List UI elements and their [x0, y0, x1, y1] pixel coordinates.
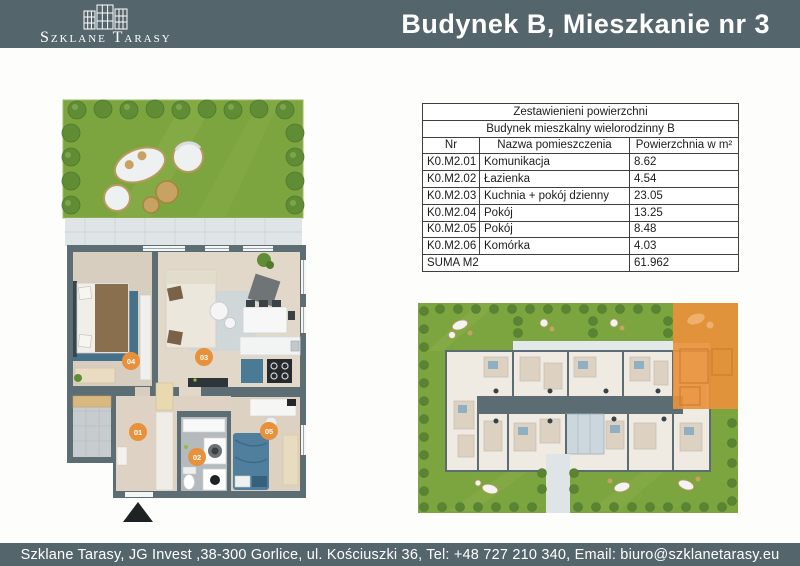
komorka-shelf	[73, 396, 111, 407]
table-header-row: Nr Nazwa pomieszczenia Powierzchnia w m²	[423, 137, 739, 154]
brand-logo: Szklane Tarasy	[40, 4, 172, 45]
table-row: K0.M2.04 Pokój 13.25	[423, 204, 739, 221]
page-title: Budynek B, Mieszkanie nr 3	[401, 9, 770, 40]
table-title: Zestawienieni powierzchni	[423, 104, 739, 121]
table-title-row: Zestawienieni powierzchni	[423, 104, 739, 121]
corridor-01-floor-upper	[116, 396, 231, 411]
table-row: K0.M2.02 Łazienka 4.54	[423, 171, 739, 188]
table-subtitle: Budynek mieszkalny wielorodzinny B	[423, 120, 739, 137]
cell-name: Kuchnia + pokój dzienny	[480, 187, 630, 204]
footer-bar: Szklane Tarasy, JG Invest ,38-300 Gorlic…	[0, 543, 800, 566]
room-label-01: 01	[134, 428, 142, 437]
apartment-floor-plan: 01 02 03 04 05	[55, 95, 307, 530]
cell-nr: K0.M2.03	[423, 187, 480, 204]
cell-name: Pokój	[480, 221, 630, 238]
table-row: K0.M2.03 Kuchnia + pokój dzienny 23.05	[423, 187, 739, 204]
table-row: K0.M2.05 Pokój 8.48	[423, 221, 739, 238]
table-row: K0.M2.01 Komunikacja 8.62	[423, 154, 739, 171]
entrance-arrow	[123, 502, 153, 522]
room-label-02: 02	[193, 453, 201, 462]
table-subtitle-row: Budynek mieszkalny wielorodzinny B	[423, 120, 739, 137]
building-site-plan	[418, 303, 738, 513]
col-header-name: Nazwa pomieszczenia	[480, 137, 630, 154]
cell-nr: K0.M2.05	[423, 221, 480, 238]
cell-nr: K0.M2.06	[423, 238, 480, 255]
cell-name: Łazienka	[480, 171, 630, 188]
garden-table	[156, 181, 178, 203]
cell-area: 4.03	[630, 238, 739, 255]
cell-name: Komunikacja	[480, 154, 630, 171]
cell-nr: K0.M2.01	[423, 154, 480, 171]
room-label-05: 05	[265, 427, 273, 436]
highlighted-unit	[673, 303, 738, 409]
garden-lounger-small	[104, 185, 130, 211]
entry-walkway	[546, 454, 570, 513]
building-icon	[83, 4, 129, 30]
garden-lounger-round	[173, 142, 203, 172]
table-sum-row: SUMA M2 61.962	[423, 255, 739, 272]
cell-area: 13.25	[630, 204, 739, 221]
terrace	[65, 218, 302, 246]
cell-area: 8.62	[630, 154, 739, 171]
sum-label: SUMA M2	[423, 255, 630, 272]
cell-name: Komórka	[480, 238, 630, 255]
garden-table-small	[143, 197, 159, 213]
cell-area: 8.48	[630, 221, 739, 238]
cell-nr: K0.M2.02	[423, 171, 480, 188]
cell-area: 23.05	[630, 187, 739, 204]
area-table: Zestawienieni powierzchni Budynek mieszk…	[422, 103, 738, 272]
col-header-area: Powierzchnia w m²	[630, 137, 739, 154]
cell-nr: K0.M2.04	[423, 204, 480, 221]
col-header-nr: Nr	[423, 137, 480, 154]
cell-name: Pokój	[480, 204, 630, 221]
table-row: K0.M2.06 Komórka 4.03	[423, 238, 739, 255]
sum-value: 61.962	[630, 255, 739, 272]
brand-name: Szklane Tarasy	[40, 31, 172, 45]
site-building	[446, 351, 710, 471]
footer-contact-text: Szklane Tarasy, JG Invest ,38-300 Gorlic…	[21, 547, 780, 563]
room-label-04: 04	[127, 357, 136, 366]
cell-area: 4.54	[630, 171, 739, 188]
kitchen-furniture	[240, 337, 300, 383]
room-label-03: 03	[200, 353, 208, 362]
garden-area	[62, 100, 304, 218]
header-bar: Szklane Tarasy Budynek B, Mieszkanie nr …	[0, 0, 800, 48]
